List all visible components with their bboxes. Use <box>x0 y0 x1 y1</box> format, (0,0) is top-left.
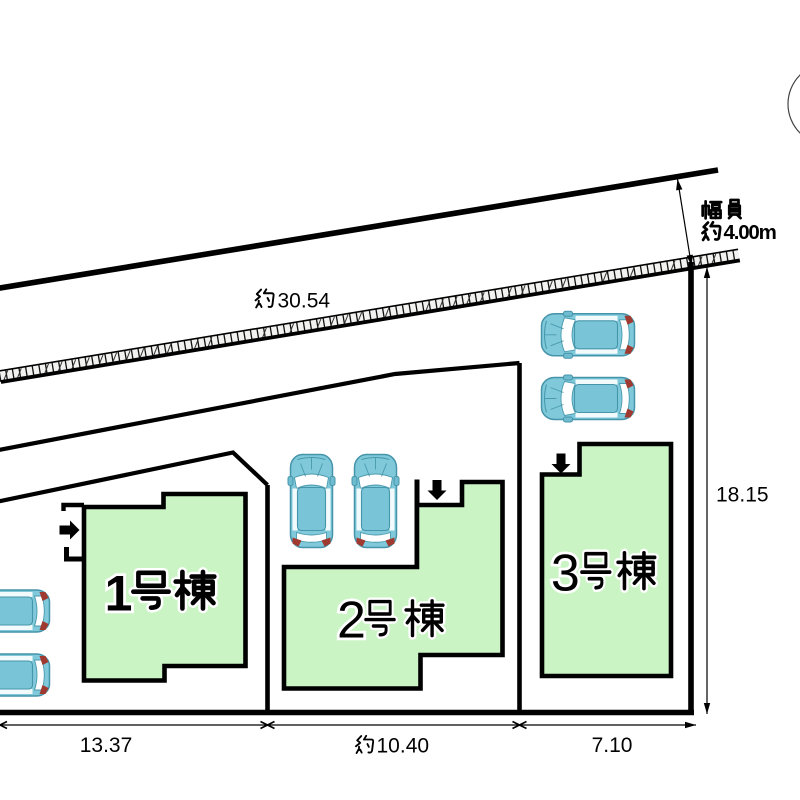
svg-text:30.54: 30.54 <box>278 290 331 313</box>
svg-text:2: 2 <box>337 592 366 650</box>
svg-text:13.37: 13.37 <box>80 734 133 757</box>
svg-text:3: 3 <box>551 545 580 603</box>
svg-text:10.40: 10.40 <box>377 735 430 758</box>
svg-text:7.10: 7.10 <box>592 734 633 757</box>
svg-text:1: 1 <box>105 566 133 622</box>
svg-text:18.15: 18.15 <box>716 484 769 507</box>
svg-text:4.00m: 4.00m <box>724 221 776 244</box>
